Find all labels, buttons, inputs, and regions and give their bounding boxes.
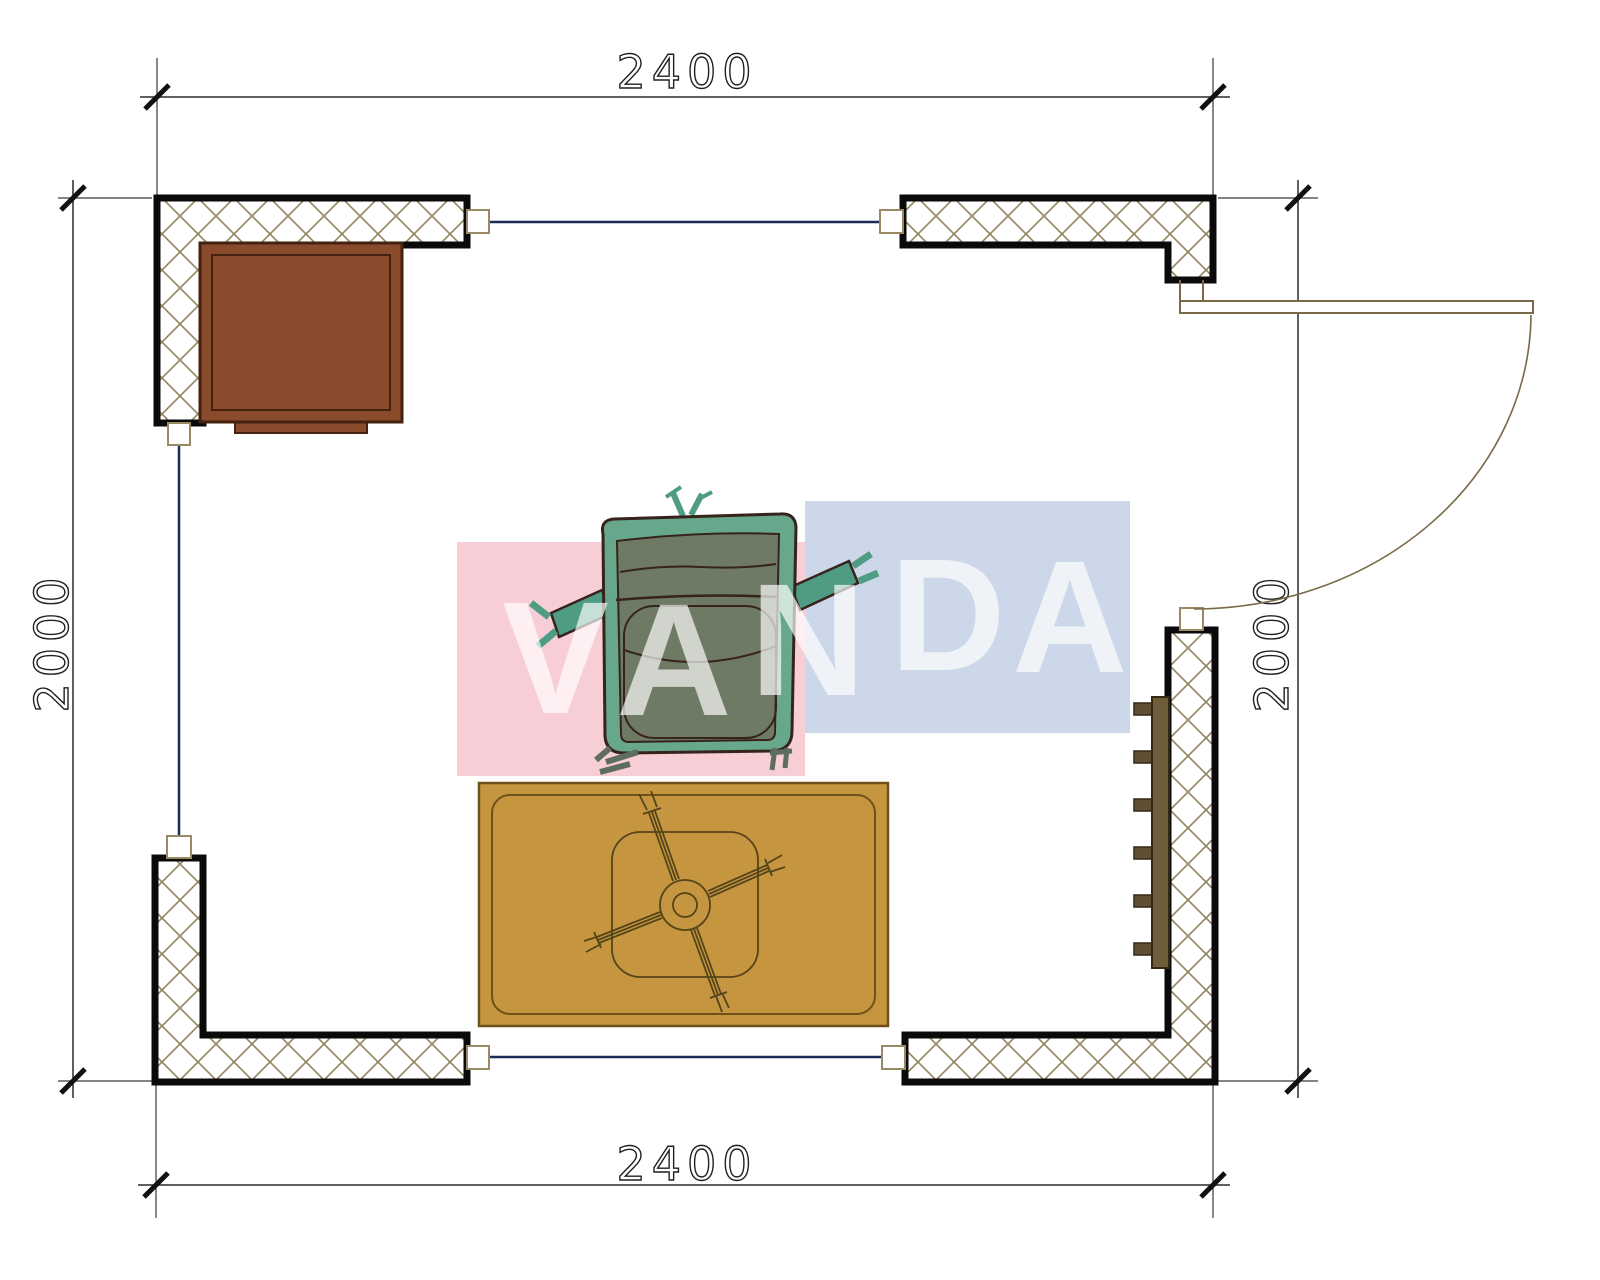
watermark-letter-d: D [890, 525, 1006, 704]
rug [479, 783, 888, 1026]
wall-connector [168, 423, 190, 445]
watermark-letter-a1: A [616, 570, 732, 749]
wall-top-right [903, 198, 1213, 280]
wall-bottom-left [155, 858, 467, 1082]
floor-plan-page: 2400 2400 2000 2000 [0, 0, 1600, 1280]
wall-connector [882, 1046, 905, 1069]
watermark-letter-a2: A [1012, 527, 1128, 706]
wall-connector [880, 210, 903, 233]
table-rug [479, 783, 888, 1026]
radiator-fin [1134, 751, 1152, 763]
dim-label-right: 2000 [1245, 571, 1299, 712]
wall-connector [467, 1046, 489, 1069]
floor-plan-drawing: 2400 2400 2000 2000 [0, 0, 1600, 1280]
radiator [1134, 697, 1169, 968]
radiator-fin [1134, 703, 1152, 715]
watermark-letter-v: V [502, 568, 609, 747]
door-swing-arc [1194, 315, 1531, 609]
dim-label-bottom: 2400 [616, 1137, 757, 1191]
radiator-fin [1134, 895, 1152, 907]
cabinet [200, 243, 402, 433]
wall-connector [1180, 608, 1203, 630]
radiator-fin [1134, 943, 1152, 955]
radiator-fins [1134, 703, 1152, 955]
armchair-foot-top [673, 493, 702, 516]
cabinet-body [200, 243, 402, 422]
watermark-letter-n: N [750, 550, 866, 729]
door-panel [1180, 301, 1533, 313]
dim-label-left: 2000 [25, 571, 79, 712]
radiator-fin [1134, 847, 1152, 859]
wall-connector [167, 836, 191, 858]
radiator-fin [1134, 799, 1152, 811]
radiator-body [1152, 697, 1169, 968]
wall-connector [467, 210, 489, 233]
door [1180, 280, 1533, 609]
dim-label-top: 2400 [616, 45, 757, 99]
